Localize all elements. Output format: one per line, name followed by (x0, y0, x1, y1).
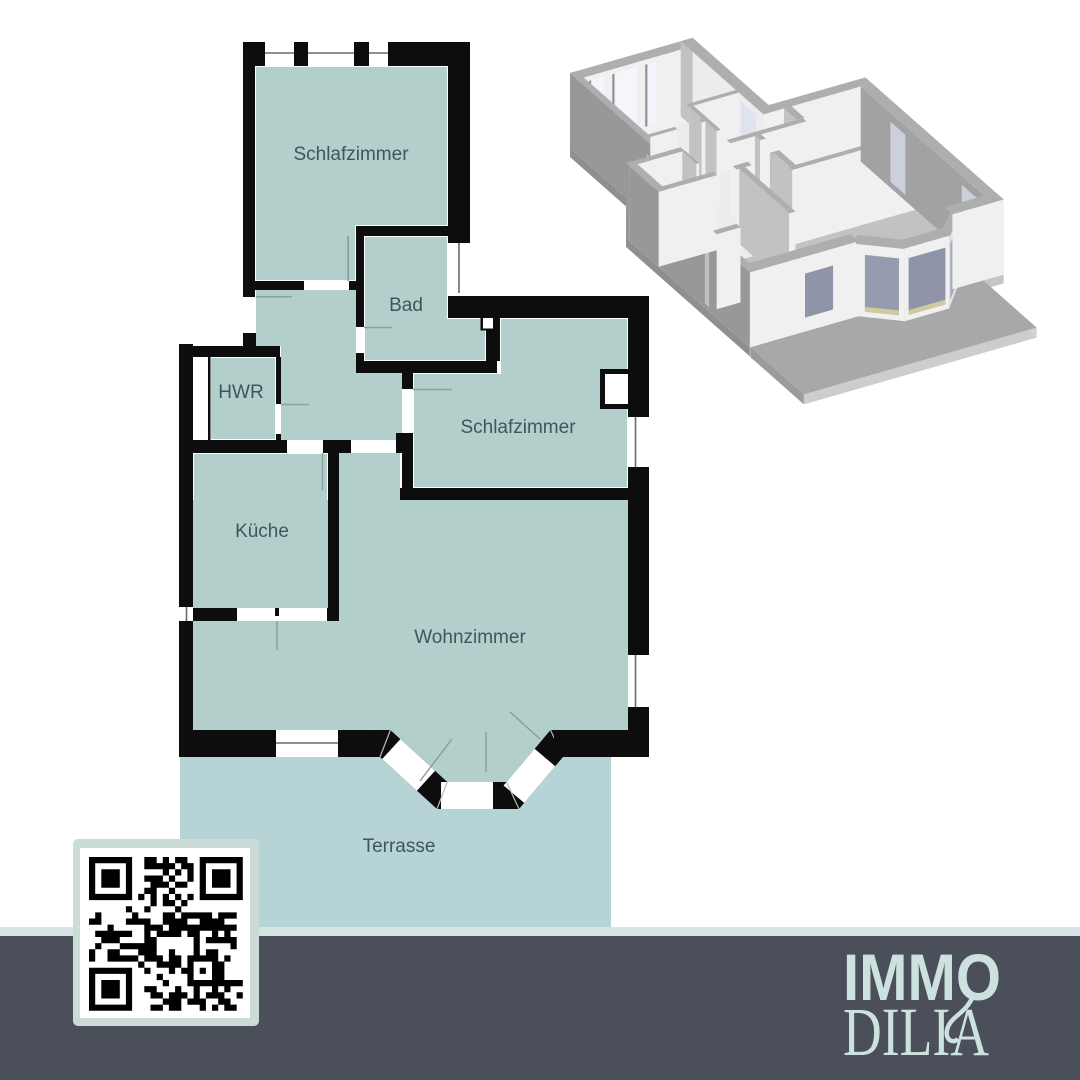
svg-text:Bad: Bad (389, 295, 423, 316)
svg-text:Küche: Küche (235, 521, 289, 542)
svg-text:Wohnzimmer: Wohnzimmer (414, 627, 526, 648)
svg-text:Schlafzimmer: Schlafzimmer (460, 417, 576, 438)
svg-text:Terrasse: Terrasse (363, 836, 436, 857)
svg-text:HWR: HWR (218, 382, 263, 403)
svg-text:Schlafzimmer: Schlafzimmer (293, 144, 409, 165)
